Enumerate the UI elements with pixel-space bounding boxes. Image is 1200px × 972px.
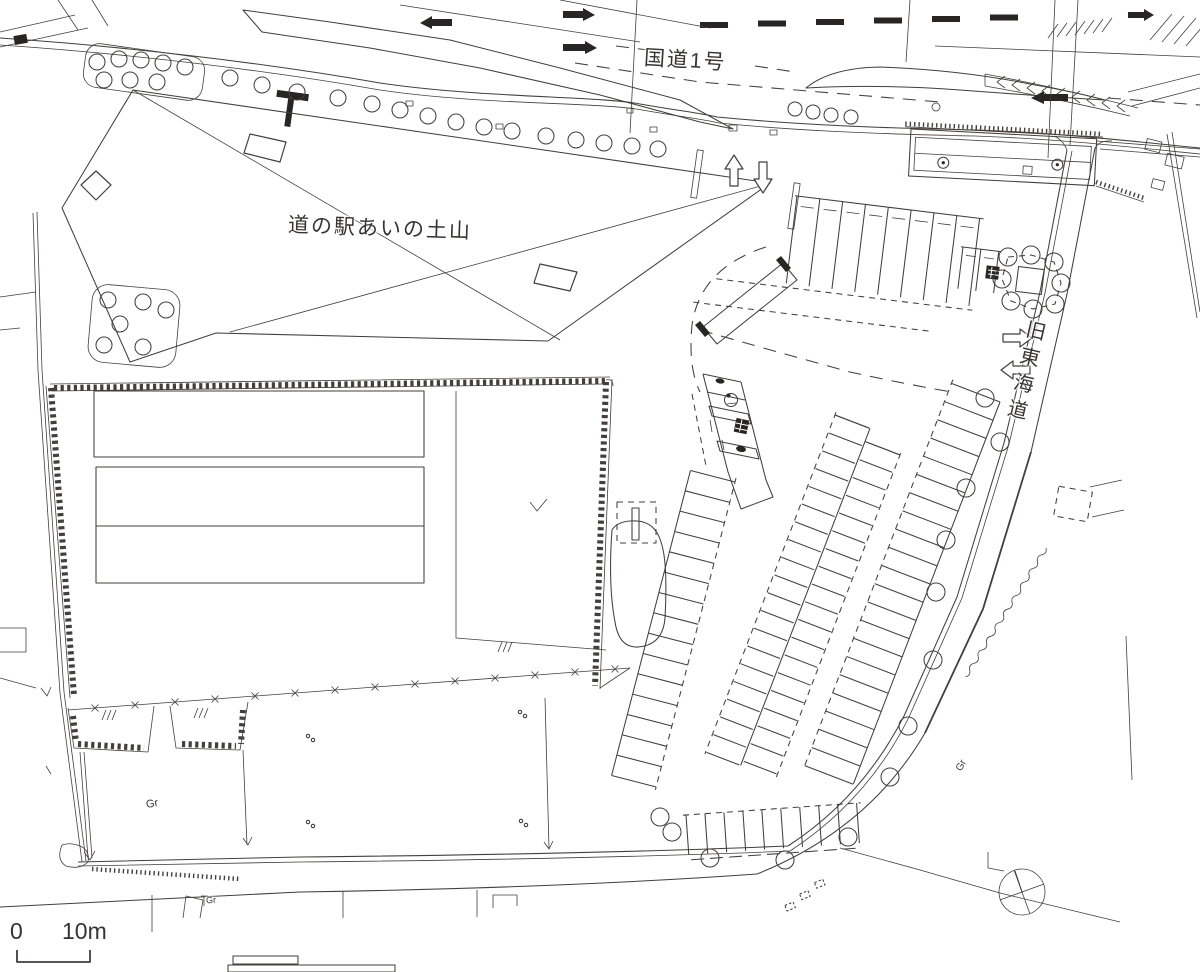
slope-bank [68, 702, 248, 752]
site-plan-canvas [0, 0, 1200, 972]
scale-zero-label: 0 [10, 918, 23, 945]
pedestrian-walkway [695, 256, 797, 344]
old-tokaido-road [0, 132, 1200, 922]
entrance [691, 150, 952, 466]
label-ground-bottom: Gr [206, 895, 217, 906]
exit-arrow-down [754, 162, 772, 193]
wheelchair-icon [725, 394, 738, 407]
stall-row-west [611, 467, 736, 790]
stall-row-east [803, 380, 1001, 788]
sign-board-icon [734, 418, 750, 434]
pergola-planting [993, 246, 1070, 318]
north-parking [693, 124, 1103, 336]
entry-arrow-up [725, 155, 743, 186]
site-plan: 国道1号 道の駅あいの土山 旧東海道 Gr Gr Gr 0 10m [0, 0, 1200, 972]
label-national-route-1: 国道1号 [643, 42, 727, 77]
accessible-sign-icon [985, 265, 999, 279]
bus-shelter [903, 124, 1103, 186]
signal-mark [272, 90, 309, 129]
scale-10m-label: 10m [62, 918, 107, 945]
survey-dots [306, 710, 527, 827]
accessible-stall-strip [703, 374, 773, 509]
label-ground-left: Gr [145, 797, 159, 811]
tree-symbols [82, 42, 1009, 869]
north-compass-icon [999, 869, 1045, 915]
scale-bar [17, 950, 90, 962]
label-roadside-station: 道の駅あいの土山 [288, 209, 473, 245]
west-field [46, 377, 630, 698]
lane-dashes [700, 15, 1018, 29]
parking-lot [611, 150, 1002, 860]
island-monument [611, 502, 666, 647]
